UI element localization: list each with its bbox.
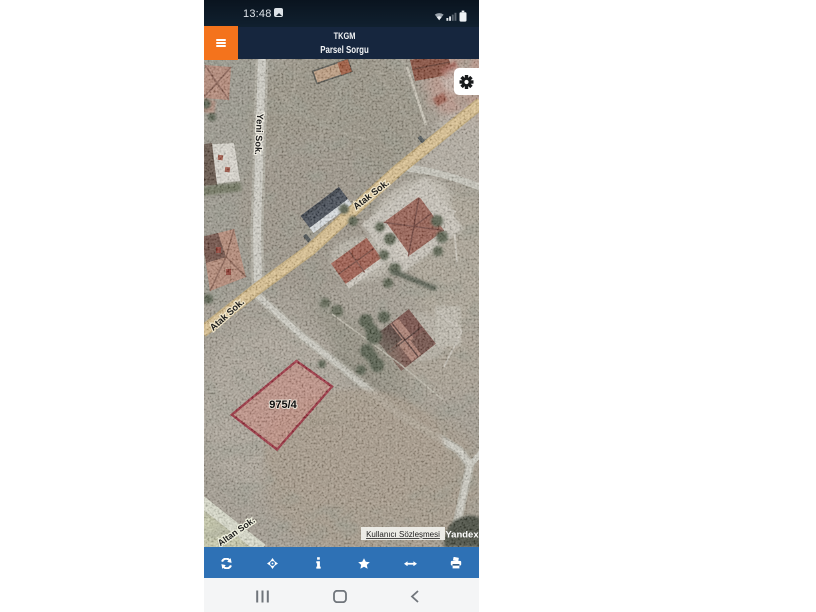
svg-text:Kullanıcı Sözleşmesi: Kullanıcı Sözleşmesi bbox=[366, 530, 440, 539]
svg-text:Yandex: Yandex bbox=[308, 417, 337, 427]
svg-text:Yandex: Yandex bbox=[445, 530, 479, 541]
svg-text:975/4: 975/4 bbox=[269, 399, 297, 411]
